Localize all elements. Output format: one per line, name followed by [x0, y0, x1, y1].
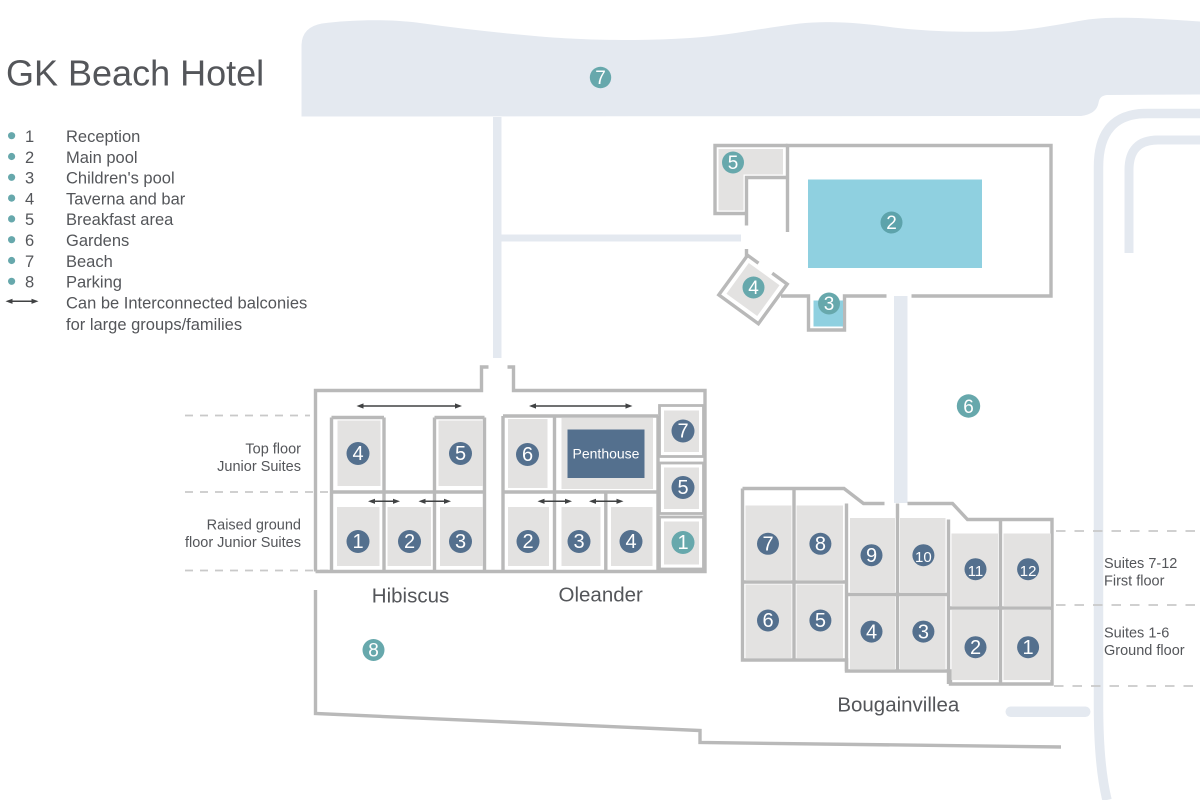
svg-text:8: 8 [815, 534, 826, 556]
svg-text:Breakfast area: Breakfast area [66, 211, 174, 229]
svg-text:1: 1 [25, 128, 34, 146]
svg-text:floor Junior Suites: floor Junior Suites [185, 535, 301, 551]
svg-text:3: 3 [573, 531, 584, 553]
svg-text:7: 7 [25, 253, 34, 271]
svg-text:4: 4 [352, 443, 363, 465]
svg-text:Beach: Beach [66, 253, 113, 271]
svg-text:11: 11 [968, 563, 984, 580]
svg-text:GK Beach Hotel: GK Beach Hotel [6, 53, 264, 94]
svg-text:6: 6 [25, 232, 34, 250]
svg-text:5: 5 [677, 477, 688, 499]
svg-text:Penthouse: Penthouse [573, 446, 640, 462]
svg-text:2: 2 [886, 213, 897, 234]
svg-text:5: 5 [455, 443, 466, 465]
svg-text:Top floor: Top floor [245, 442, 301, 458]
svg-text:Ground floor: Ground floor [1104, 643, 1185, 659]
svg-text:Suites 7-12: Suites 7-12 [1104, 556, 1177, 572]
svg-text:Bougainvillea: Bougainvillea [837, 694, 960, 717]
svg-text:Reception: Reception [66, 128, 140, 146]
svg-text:6: 6 [522, 444, 533, 466]
svg-text:Hibiscus: Hibiscus [372, 585, 449, 608]
svg-text:5: 5 [815, 610, 826, 632]
svg-text:5: 5 [728, 153, 739, 174]
svg-text:Can be Interconnected balconie: Can be Interconnected balconies [66, 294, 307, 312]
svg-text:5: 5 [25, 211, 34, 229]
svg-text:1: 1 [1023, 637, 1034, 659]
svg-text:4: 4 [25, 190, 34, 208]
svg-text:7: 7 [595, 68, 606, 89]
svg-text:4: 4 [748, 278, 759, 299]
svg-text:4: 4 [866, 621, 877, 643]
svg-text:3: 3 [918, 621, 929, 643]
svg-text:Raised ground: Raised ground [207, 518, 301, 534]
svg-text:4: 4 [625, 531, 636, 553]
svg-text:2: 2 [25, 149, 34, 167]
svg-text:Main pool: Main pool [66, 149, 138, 167]
svg-text:7: 7 [762, 534, 773, 556]
svg-text:Children's pool: Children's pool [66, 170, 175, 188]
svg-text:1: 1 [677, 532, 688, 554]
svg-text:6: 6 [963, 397, 974, 418]
svg-text:Suites 1-6: Suites 1-6 [1104, 626, 1169, 642]
svg-text:8: 8 [25, 274, 34, 292]
svg-text:10: 10 [915, 549, 932, 566]
svg-text:9: 9 [866, 545, 877, 567]
svg-text:12: 12 [1020, 563, 1037, 580]
svg-text:2: 2 [970, 637, 981, 659]
svg-text:Oleander: Oleander [559, 584, 644, 607]
svg-text:Gardens: Gardens [66, 232, 129, 250]
svg-text:3: 3 [824, 294, 835, 315]
svg-text:1: 1 [352, 531, 363, 553]
svg-text:First floor: First floor [1104, 573, 1165, 589]
svg-text:Junior Suites: Junior Suites [217, 459, 301, 475]
svg-text:6: 6 [762, 610, 773, 632]
svg-text:Parking: Parking [66, 274, 122, 292]
svg-text:2: 2 [404, 531, 415, 553]
svg-text:3: 3 [455, 531, 466, 553]
svg-text:Taverna and bar: Taverna and bar [66, 190, 186, 208]
svg-text:8: 8 [368, 641, 379, 662]
svg-text:7: 7 [677, 421, 688, 443]
svg-text:3: 3 [25, 170, 34, 188]
svg-text:for large groups/families: for large groups/families [66, 316, 242, 334]
svg-text:2: 2 [522, 531, 533, 553]
